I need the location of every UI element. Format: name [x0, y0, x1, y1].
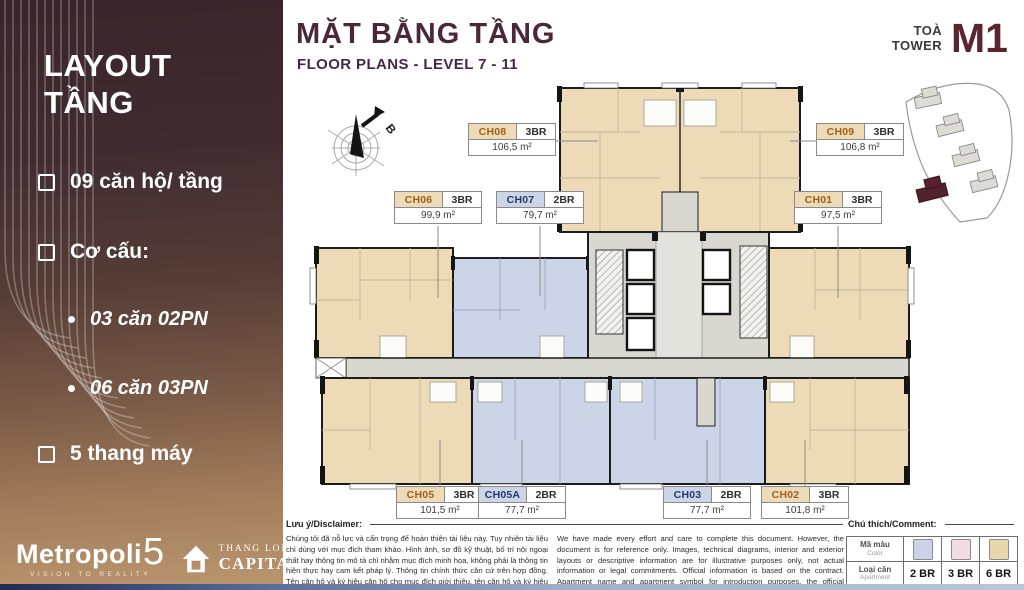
tower-word-vi: TOÀ: [892, 24, 942, 39]
square-bullet-icon: [38, 244, 55, 261]
metropolis-logo-text: Metropoli: [16, 541, 142, 568]
unit-area: 77,7 m²: [663, 503, 751, 519]
sidebar: LAYOUT TẦNG 09 căn hộ/ tầng Cơ cấu: 03 c…: [0, 0, 283, 590]
unit-code: CH06: [395, 192, 443, 207]
unit-label-CH05: CH053BR101,5 m²: [396, 486, 484, 519]
legend-swatch-cell: [941, 537, 979, 561]
sidebar-item-text: 03 căn 02PN: [90, 308, 208, 331]
site-keymap: [888, 76, 1020, 226]
unit-code: CH01: [795, 192, 843, 207]
unit-code: CH03: [664, 487, 712, 502]
metropolis-logo-five: 5: [143, 533, 165, 571]
unit-label-CH03: CH032BR77,7 m²: [663, 486, 751, 519]
legend-header: Chú thích/Comment:: [848, 519, 1014, 529]
tower-code: M1: [951, 18, 1008, 59]
color-swatch-2br: [913, 539, 933, 560]
sidebar-item: 03 căn 02PN: [38, 308, 269, 331]
unit-label-CH01: CH013BR97,5 m²: [794, 191, 882, 224]
unit-label-CH09: CH093BR106,8 m²: [816, 123, 904, 156]
unit-area: 101,5 m²: [396, 503, 484, 519]
logo-row: Metropoli 5 VISION TO REALITY THANG LONG…: [16, 541, 302, 579]
page-subtitle: FLOOR PLANS - LEVEL 7 - 11: [297, 56, 518, 73]
unit-type: 2BR: [712, 487, 750, 502]
disclaimer-english: We have made every effort and care to co…: [557, 534, 844, 590]
compass-icon: B: [322, 98, 402, 190]
unit-code: CH05A: [479, 487, 527, 502]
divider-line: [945, 524, 1015, 525]
sidebar-item: 09 căn hộ/ tầng: [38, 170, 269, 194]
compass-north-label: B: [383, 121, 400, 137]
unit-label-CH08: CH083BR106,5 m²: [468, 123, 556, 156]
unit-type: 2BR: [527, 487, 565, 502]
disclaimer-en-body: We have made every effort and care to co…: [557, 534, 844, 590]
disclaimer-header: Lưu ý/Disclaimer:: [286, 519, 843, 529]
square-bullet-icon: [38, 446, 55, 463]
legend-type-cell: 3 BR: [941, 561, 979, 585]
house-icon: [181, 544, 211, 574]
unit-type: 2BR: [545, 192, 583, 207]
legend-label: Chú thích/Comment:: [848, 519, 937, 529]
unit-area: 77,7 m²: [478, 503, 566, 519]
legend-type-cell: 6 BR: [979, 561, 1017, 585]
sidebar-item: 06 căn 03PN: [38, 377, 269, 400]
legend-swatch-cell: [903, 537, 941, 561]
sidebar-item-text: 5 thang máy: [70, 442, 193, 466]
unit-type: 3BR: [810, 487, 848, 502]
color-swatch-6br: [989, 539, 1009, 560]
divider-line: [370, 524, 843, 525]
sidebar-item: Cơ cấu:: [38, 240, 269, 264]
legend-swatch-cell: [979, 537, 1017, 561]
metropolis-logo: Metropoli 5 VISION TO REALITY: [16, 541, 165, 579]
sidebar-item-text: 06 căn 03PN: [90, 377, 208, 400]
unit-area: 106,5 m²: [468, 140, 556, 156]
legend-row1-label: Mã màu Color: [847, 537, 903, 561]
unit-label-CH05A: CH05A2BR77,7 m²: [478, 486, 566, 519]
disclaimer-vietnamese: Chúng tôi đã nỗ lực và cẩn trọng để hoàn…: [286, 534, 548, 590]
legend-table: Mã màu Color Loại căn Apartment 2 BR 3 B…: [846, 536, 1018, 586]
unit-code: CH09: [817, 124, 865, 139]
unit-code: CH07: [497, 192, 545, 207]
disclaimer-vi-body: Chúng tôi đã nỗ lực và cẩn trọng để hoàn…: [286, 534, 548, 590]
unit-area: 106,8 m²: [816, 140, 904, 156]
unit-label-CH06: CH063BR99,9 m²: [394, 191, 482, 224]
legend-type-cell: 2 BR: [903, 561, 941, 585]
dot-bullet-icon: [68, 385, 75, 392]
disclaimer-label: Lưu ý/Disclaimer:: [286, 519, 362, 529]
unit-code: CH05: [397, 487, 445, 502]
unit-type: 3BR: [865, 124, 903, 139]
unit-code: CH02: [762, 487, 810, 502]
unit-area: 97,5 m²: [794, 208, 882, 224]
sidebar-item-text: Cơ cấu:: [70, 240, 149, 264]
page-title: MẶT BẰNG TẦNG: [296, 18, 555, 51]
legend-row2-label: Loại căn Apartment: [847, 561, 903, 585]
unit-type: 3BR: [843, 192, 881, 207]
unit-code: CH08: [469, 124, 517, 139]
unit-label-CH07: CH072BR79,7 m²: [496, 191, 584, 224]
unit-type: 3BR: [443, 192, 481, 207]
sidebar-list: 09 căn hộ/ tầng Cơ cấu: 03 căn 02PN 06 c…: [38, 170, 269, 466]
dot-bullet-icon: [68, 316, 75, 323]
color-swatch-3br: [951, 539, 971, 560]
sidebar-item-text: 09 căn hộ/ tầng: [70, 170, 223, 194]
unit-type: 3BR: [517, 124, 555, 139]
sidebar-item: 5 thang máy: [38, 442, 269, 466]
bottom-accent-strip: [0, 584, 1024, 590]
slide-page: LAYOUT TẦNG 09 căn hộ/ tầng Cơ cấu: 03 c…: [0, 0, 1024, 590]
square-bullet-icon: [38, 174, 55, 191]
sidebar-title: LAYOUT TẦNG: [44, 48, 224, 121]
tower-badge: TOÀ TOWER M1: [892, 18, 1008, 59]
unit-area: 99,9 m²: [394, 208, 482, 224]
unit-area: 79,7 m²: [496, 208, 584, 224]
metropolis-tagline: VISION TO REALITY: [16, 572, 165, 579]
unit-area: 101,8 m²: [761, 503, 849, 519]
unit-label-CH02: CH023BR101,8 m²: [761, 486, 849, 519]
thang-long-capital-logo: THANG LONG CAPITAL: [181, 544, 303, 574]
tower-word-en: TOWER: [892, 39, 942, 54]
